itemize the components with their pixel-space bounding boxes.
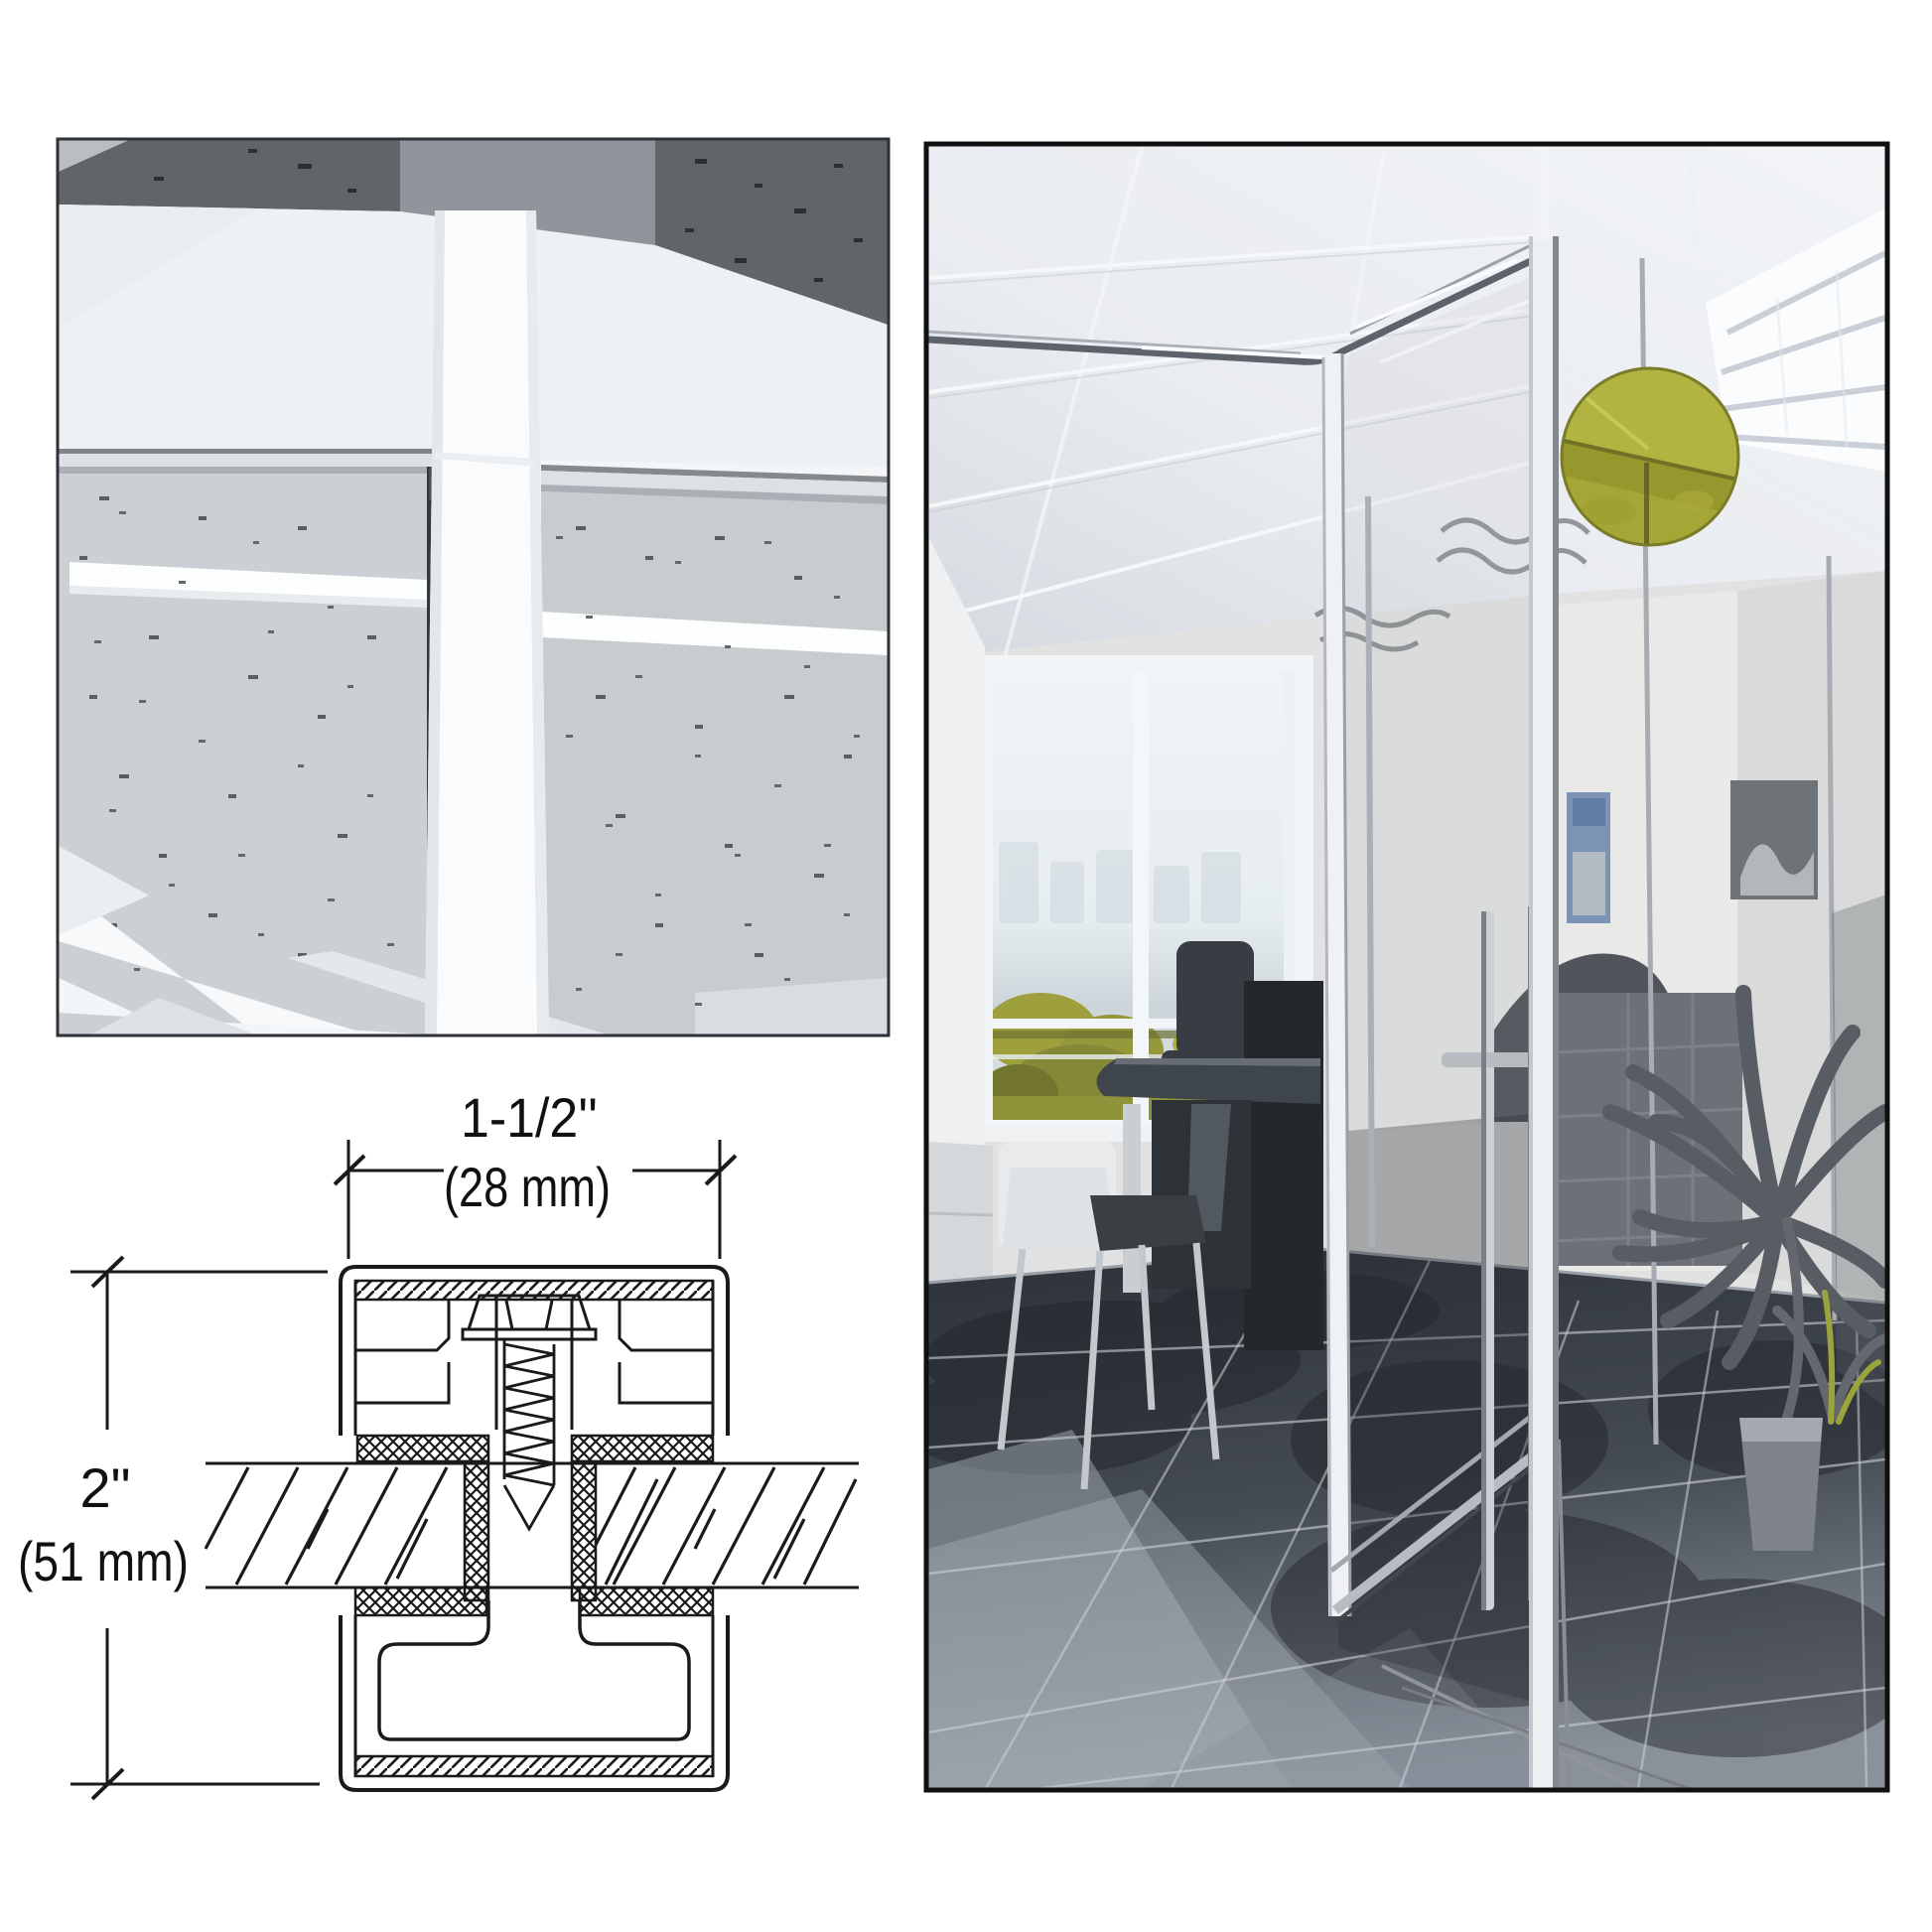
svg-text:1-1/2'': 1-1/2'' — [461, 1086, 598, 1149]
svg-text:2": 2" — [79, 1456, 130, 1519]
svg-text:(51 mm): (51 mm) — [18, 1530, 189, 1592]
svg-text:(28 mm): (28 mm) — [444, 1156, 611, 1218]
